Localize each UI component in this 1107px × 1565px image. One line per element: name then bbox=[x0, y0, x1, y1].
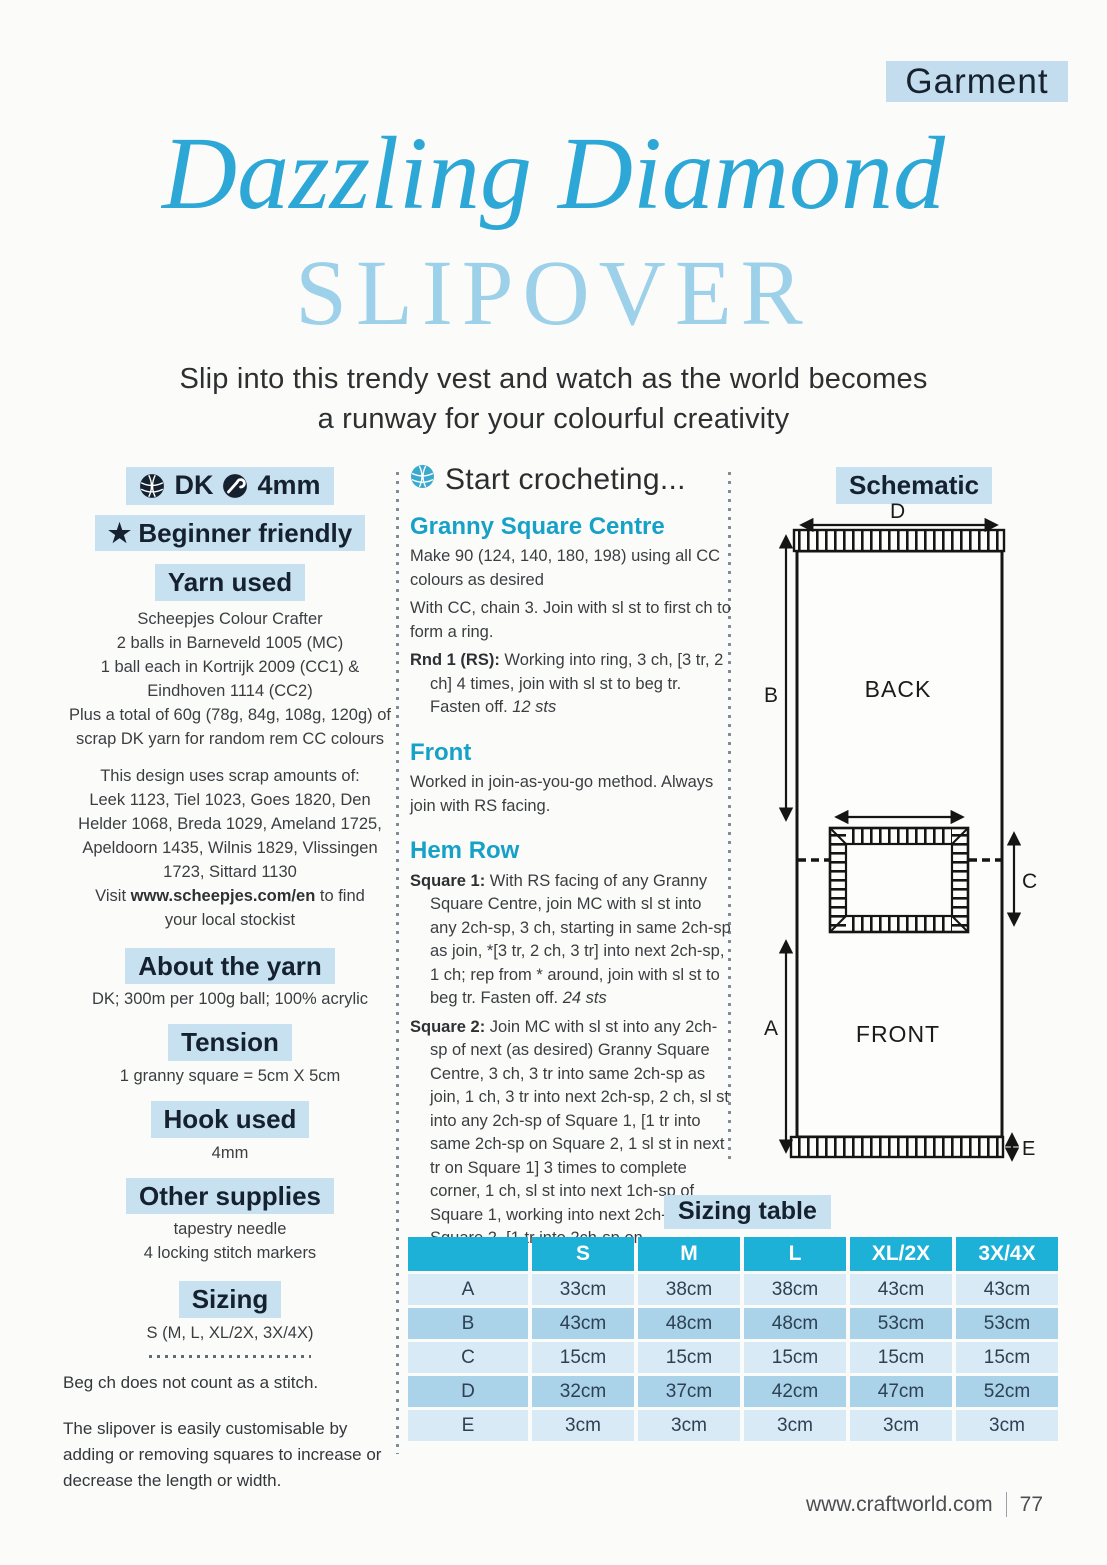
skill-level-badge: ★ Beginner friendly bbox=[95, 515, 365, 552]
table-cell: 53cm bbox=[956, 1308, 1058, 1339]
section-heading-other-supplies: Other supplies bbox=[126, 1178, 334, 1215]
tension-text: 1 granny square = 5cm X 5cm bbox=[63, 1064, 397, 1088]
section-heading-yarn-used: Yarn used bbox=[155, 564, 305, 601]
visit-suffix: to find bbox=[315, 887, 365, 905]
table-cell: 38cm bbox=[638, 1274, 740, 1305]
table-cell: 32cm bbox=[532, 1376, 634, 1407]
neck-opening bbox=[830, 828, 968, 932]
column-header-m: M bbox=[638, 1237, 740, 1271]
scrap-line: 1723, Sittard 1130 bbox=[63, 860, 397, 884]
yarn-spec-badge: DK 4mm bbox=[126, 467, 333, 505]
dim-a-label: A bbox=[764, 1017, 778, 1040]
schematic-bottom-ribbing bbox=[791, 1137, 1003, 1157]
hem-row-heading: Hem Row bbox=[410, 838, 732, 864]
table-cell: 3cm bbox=[638, 1410, 740, 1441]
pattern-note-2: The slipover is easily customisable by a… bbox=[63, 1416, 397, 1494]
hook-size-label: 4mm bbox=[257, 471, 320, 501]
column-header-l: L bbox=[744, 1237, 846, 1271]
about-yarn-text: DK; 300m per 100g ball; 100% acrylic bbox=[63, 987, 397, 1011]
table-cell: 53cm bbox=[850, 1308, 952, 1339]
scrap-yarn-details: This design uses scrap amounts of: Leek … bbox=[63, 764, 397, 932]
page-title-line2: SLIPOVER bbox=[0, 247, 1107, 340]
section-heading-sizing: Sizing bbox=[179, 1281, 282, 1318]
table-cell: 3cm bbox=[850, 1410, 952, 1441]
page-title-line1: Dazzling Diamond bbox=[0, 122, 1107, 226]
stockist-line: Visit www.scheepjes.com/en to find bbox=[63, 884, 397, 908]
start-crocheting-heading: Start crocheting... bbox=[410, 463, 732, 497]
pattern-note-1: Beg ch does not count as a stitch. bbox=[63, 1370, 397, 1396]
yarn-line: 2 balls in Barneveld 1005 (MC) bbox=[63, 631, 397, 655]
granny-paragraph-1: Make 90 (124, 140, 180, 198) using all C… bbox=[410, 545, 732, 592]
yarn-line: scrap DK yarn for random rem CC colours bbox=[63, 727, 397, 751]
yarn-ball-teal-icon bbox=[410, 463, 435, 497]
pattern-info-column: DK 4mm ★ Beginner friendly Yarn used Sch… bbox=[63, 465, 397, 1494]
table-cell: 43cm bbox=[956, 1274, 1058, 1305]
sizing-table-heading: Sizing table bbox=[664, 1195, 831, 1229]
table-cell: 15cm bbox=[744, 1342, 846, 1373]
garment-schematic-diagram: D B BACK C A FRON bbox=[750, 495, 1080, 1175]
instructions-column: Start crocheting... Granny Square Centre… bbox=[410, 463, 732, 1251]
table-cell: 15cm bbox=[850, 1342, 952, 1373]
sizing-text: S (M, L, XL/2X, 3X/4X) bbox=[63, 1321, 397, 1345]
row-label: D bbox=[408, 1376, 528, 1407]
square-2-label: Square 2: bbox=[410, 1018, 485, 1036]
sizing-table: S M L XL/2X 3X/4X A 33cm 38cm 38cm 43cm … bbox=[408, 1237, 1058, 1441]
square-1-label: Square 1: bbox=[410, 872, 485, 890]
round-1-label: Rnd 1 (RS): bbox=[410, 651, 500, 669]
stockist-line2: your local stockist bbox=[63, 908, 397, 932]
standfirst-line1: Slip into this trendy vest and watch as … bbox=[0, 363, 1107, 396]
table-cell: 15cm bbox=[638, 1342, 740, 1373]
table-cell: 3cm bbox=[744, 1410, 846, 1441]
front-label: FRONT bbox=[856, 1021, 940, 1047]
dim-e-label: E bbox=[1022, 1138, 1035, 1160]
round-1-instruction: Rnd 1 (RS): Working into ring, 3 ch, [3 … bbox=[410, 649, 732, 720]
yarn-line: Plus a total of 60g (78g, 84g, 108g, 120… bbox=[63, 703, 397, 727]
table-cell: 42cm bbox=[744, 1376, 846, 1407]
table-cell: 37cm bbox=[638, 1376, 740, 1407]
table-cell: 48cm bbox=[638, 1308, 740, 1339]
table-cell: 3cm bbox=[956, 1410, 1058, 1441]
page-number: 77 bbox=[1020, 1493, 1043, 1517]
hook-used-text: 4mm bbox=[63, 1141, 397, 1165]
yarn-line: 1 ball each in Kortrijk 2009 (CC1) & bbox=[63, 655, 397, 679]
other-supplies-list: tapestry needle 4 locking stitch markers bbox=[63, 1217, 397, 1265]
row-label: B bbox=[408, 1308, 528, 1339]
scrap-line: Apeldoorn 1435, Wilnis 1829, Vlissingen bbox=[63, 836, 397, 860]
yarn-used-details: Scheepjes Colour Crafter 2 balls in Barn… bbox=[63, 607, 397, 751]
star-icon: ★ bbox=[108, 518, 131, 548]
dim-d-label: D bbox=[890, 500, 905, 523]
front-heading: Front bbox=[410, 740, 732, 766]
column-header-3x4x: 3X/4X bbox=[956, 1237, 1058, 1271]
yarn-line: Scheepjes Colour Crafter bbox=[63, 607, 397, 631]
back-label: BACK bbox=[865, 676, 932, 702]
scrap-line: This design uses scrap amounts of: bbox=[63, 764, 397, 788]
stockist-url: www.scheepjes.com/en bbox=[131, 887, 316, 905]
page-footer: www.craftworld.com 77 bbox=[806, 1492, 1043, 1517]
yarn-line: Eindhoven 1114 (CC2) bbox=[63, 679, 397, 703]
scrap-line: Leek 1123, Tiel 1023, Goes 1820, Den bbox=[63, 788, 397, 812]
dotted-separator bbox=[149, 1355, 311, 1358]
table-cell: 48cm bbox=[744, 1308, 846, 1339]
table-cell: 15cm bbox=[532, 1342, 634, 1373]
square-1-stitch-count: 24 sts bbox=[563, 989, 607, 1007]
section-heading-about-yarn: About the yarn bbox=[125, 948, 334, 985]
yarn-ball-icon bbox=[139, 473, 165, 499]
square-1-text: With RS facing of any Granny Square Cent… bbox=[430, 872, 731, 1008]
footer-website: www.craftworld.com bbox=[806, 1493, 993, 1517]
skill-level-label: Beginner friendly bbox=[138, 518, 352, 548]
table-cell: 43cm bbox=[532, 1308, 634, 1339]
table-corner-cell bbox=[408, 1237, 528, 1271]
schematic-top-ribbing bbox=[794, 530, 1004, 551]
dim-b-label: B bbox=[764, 684, 778, 707]
scrap-line: Helder 1068, Breda 1029, Ameland 1725, bbox=[63, 812, 397, 836]
dim-c-label: C bbox=[1022, 870, 1037, 893]
table-cell: 47cm bbox=[850, 1376, 952, 1407]
table-cell: 43cm bbox=[850, 1274, 952, 1305]
row-label: A bbox=[408, 1274, 528, 1305]
visit-prefix: Visit bbox=[95, 887, 130, 905]
supply-item: tapestry needle bbox=[63, 1217, 397, 1241]
section-heading-hook-used: Hook used bbox=[151, 1101, 310, 1138]
front-paragraph: Worked in join-as-you-go method. Always … bbox=[410, 771, 732, 818]
table-cell: 52cm bbox=[956, 1376, 1058, 1407]
column-header-xl2x: XL/2X bbox=[850, 1237, 952, 1271]
magazine-page: Garment Dazzling Diamond SLIPOVER Slip i… bbox=[0, 0, 1107, 1565]
start-crocheting-label: Start crocheting... bbox=[445, 463, 686, 497]
crochet-hook-icon bbox=[222, 473, 248, 499]
footer-divider bbox=[1006, 1492, 1007, 1517]
table-cell: 15cm bbox=[956, 1342, 1058, 1373]
granny-paragraph-2: With CC, chain 3. Join with sl st to fir… bbox=[410, 597, 732, 644]
column-header-s: S bbox=[532, 1237, 634, 1271]
table-cell: 38cm bbox=[744, 1274, 846, 1305]
table-cell: 3cm bbox=[532, 1410, 634, 1441]
standfirst-line2: a runway for your colourful creativity bbox=[0, 403, 1107, 436]
yarn-weight-label: DK bbox=[174, 471, 213, 501]
row-label: C bbox=[408, 1342, 528, 1373]
supply-item: 4 locking stitch markers bbox=[63, 1241, 397, 1265]
square-1-instruction: Square 1: With RS facing of any Granny S… bbox=[410, 870, 732, 1011]
row-label: E bbox=[408, 1410, 528, 1441]
round-1-stitch-count: 12 sts bbox=[512, 698, 556, 716]
table-cell: 33cm bbox=[532, 1274, 634, 1305]
section-heading-tension: Tension bbox=[168, 1024, 292, 1061]
category-tag: Garment bbox=[886, 61, 1068, 102]
granny-square-heading: Granny Square Centre bbox=[410, 514, 732, 540]
